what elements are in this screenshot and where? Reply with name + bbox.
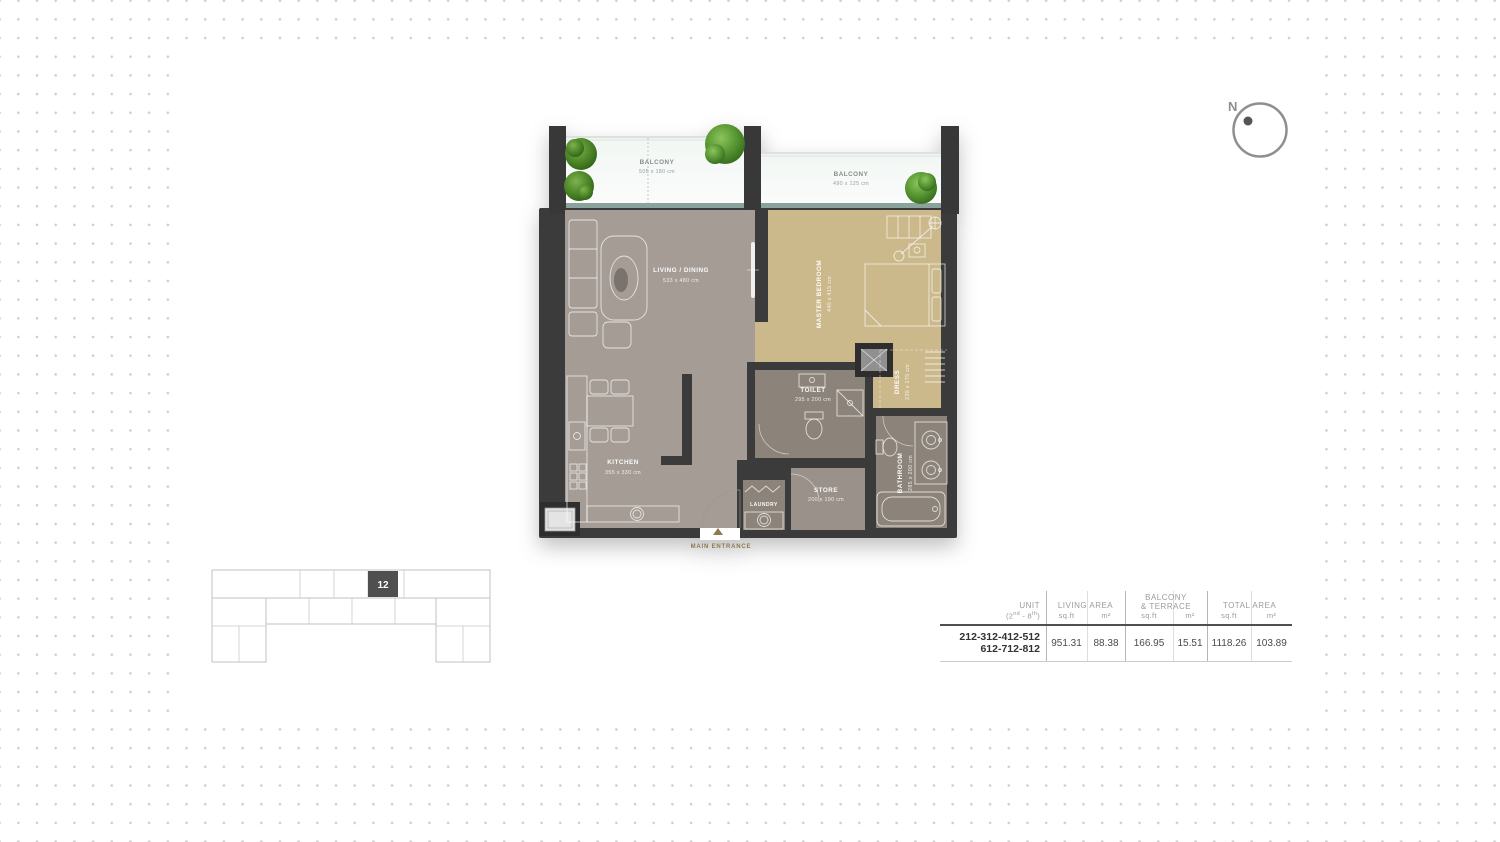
living-dining-dims: 533 x 480 cm	[663, 278, 699, 284]
balcony2-label: BALCONY	[834, 171, 869, 178]
total-sqm-value: 103.89	[1251, 638, 1292, 649]
balcony-sqm-value: 15.51	[1173, 638, 1207, 649]
plant-icon	[565, 138, 597, 170]
bathroom-dims: 285 x 200 cm	[908, 455, 914, 491]
col-header-sqm: m²	[1087, 611, 1125, 620]
toilet-dims: 295 x 200 cm	[795, 397, 831, 403]
compass-circle-icon	[1234, 104, 1287, 157]
living-dining-label: LIVING / DINING	[653, 267, 709, 274]
dress-label: DRESS	[894, 370, 901, 394]
kitchen-label: KITCHEN	[607, 459, 639, 466]
col-header-sqft: sq.ft	[1125, 611, 1173, 620]
master-bedroom-dims: 440 x 415 cm	[827, 276, 833, 312]
store-label: STORE	[814, 487, 838, 494]
unit-numbers: 212-312-412-512 612-712-812	[940, 632, 1040, 655]
area-table: UNIT (2nd - 8th) LIVING AREA sq.ft m² BA…	[940, 591, 1292, 663]
col-header-sqm: m²	[1173, 611, 1207, 620]
compass-north-label: N	[1228, 99, 1237, 114]
balcony2-dims: 490 x 125 cm	[833, 181, 869, 187]
living-sqft-value: 951.31	[1046, 638, 1087, 649]
plant-icon	[705, 124, 745, 164]
col-header-sqft: sq.ft	[1207, 611, 1251, 620]
keyplan-top-bar	[212, 570, 490, 598]
table-bottom-rule	[940, 661, 1292, 662]
compass-dot-icon	[1244, 117, 1253, 126]
toilet-label: TOILET	[800, 387, 825, 394]
utility-box	[540, 502, 580, 536]
bathroom-label: BATHROOM	[897, 453, 904, 494]
keyplan-middle-bar	[266, 598, 436, 624]
col-header-terrace: & TERRACE	[1125, 602, 1207, 611]
floor-plan: MAIN ENTRANCE	[535, 124, 963, 554]
col-header-living-area: LIVING AREA	[1046, 601, 1125, 610]
col-header-unit-range: (2nd - 8th)	[940, 611, 1040, 621]
col-header-total-area: TOTAL AREA	[1207, 601, 1292, 610]
living-sqm-value: 88.38	[1087, 638, 1125, 649]
compass: N	[1222, 90, 1302, 170]
total-sqft-value: 1118.26	[1207, 638, 1251, 649]
master-bedroom-label: MASTER BEDROOM	[816, 260, 823, 328]
laundry-label: LAUNDRY	[750, 502, 778, 508]
key-plan: 12	[208, 564, 494, 668]
dress-dims: 230 x 175 cm	[905, 364, 911, 400]
balcony1-label: BALCONY	[640, 159, 675, 166]
balcony1-dims: 505 x 180 cm	[639, 169, 675, 175]
col-header-balcony: BALCONY	[1125, 593, 1207, 602]
plant-icon	[905, 172, 937, 204]
col-header-unit: UNIT	[940, 601, 1040, 610]
plant-icon	[564, 171, 594, 201]
main-entrance-label: MAIN ENTRANCE	[691, 544, 752, 550]
kitchen-dims: 355 x 330 cm	[605, 470, 641, 476]
table-header-rule	[940, 624, 1292, 626]
keyplan-unit-number: 12	[377, 580, 389, 591]
col-header-sqm: m²	[1251, 611, 1292, 620]
store-dims: 200 x 190 cm	[808, 497, 844, 503]
col-header-sqft: sq.ft	[1046, 611, 1087, 620]
service-shaft	[855, 343, 893, 377]
balcony-sqft-value: 166.95	[1125, 638, 1173, 649]
